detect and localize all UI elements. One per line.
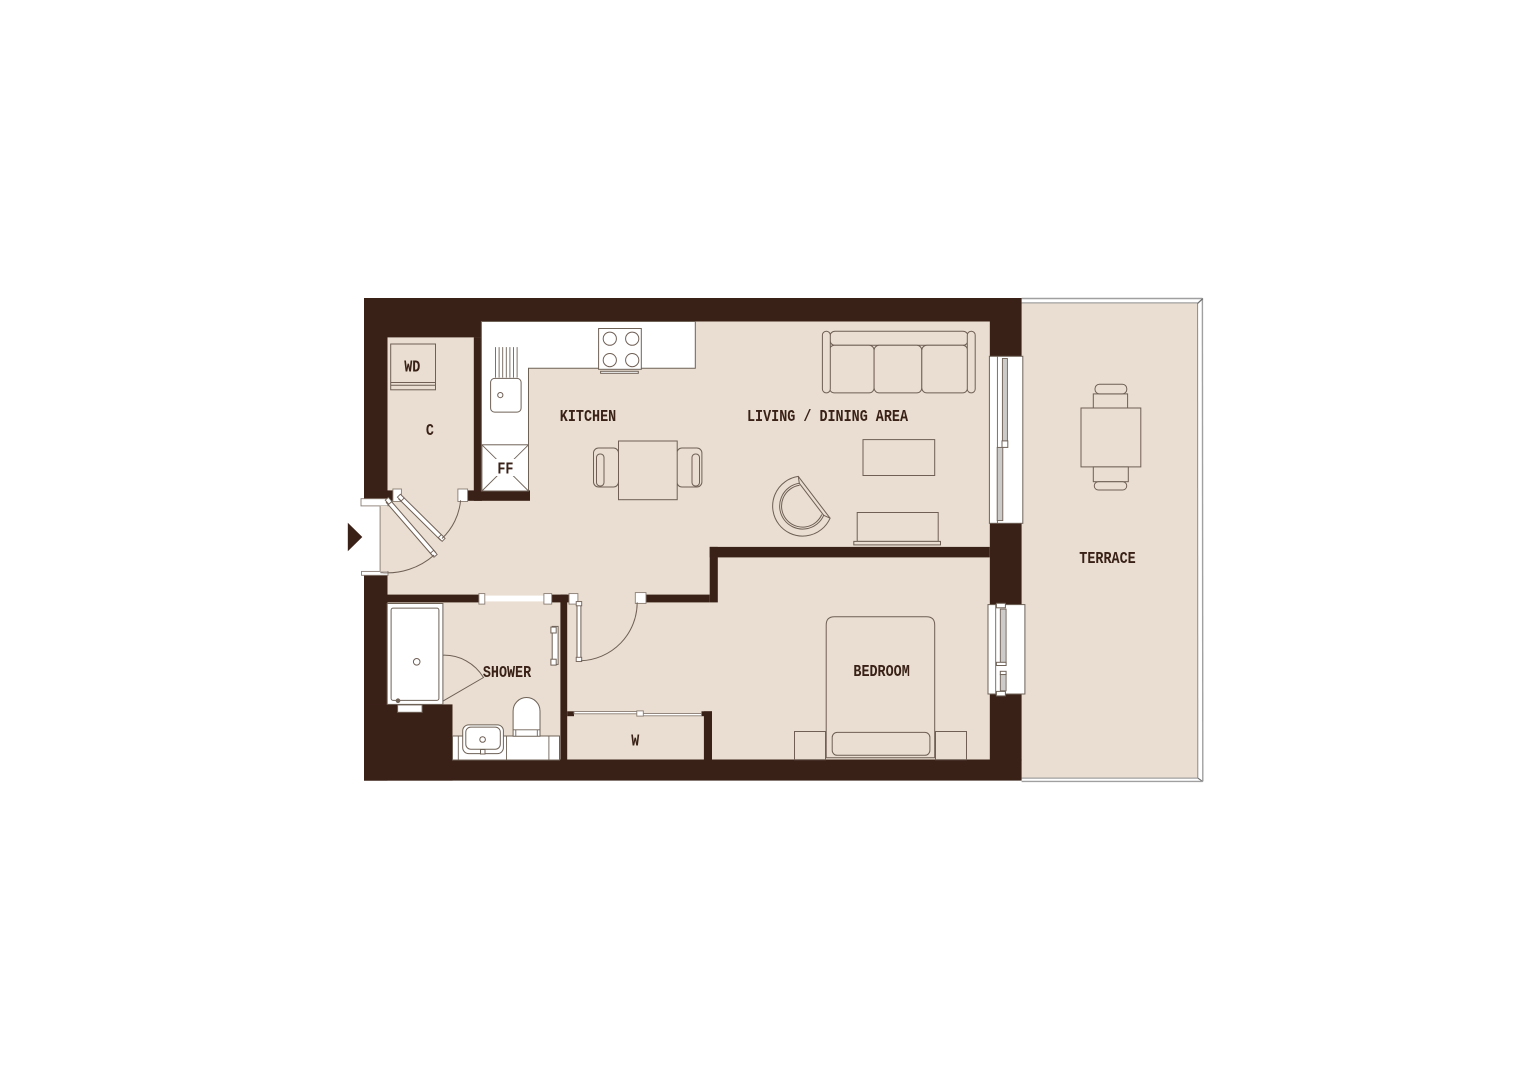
svg-text:TERRACE: TERRACE xyxy=(1079,550,1135,569)
svg-text:FF: FF xyxy=(497,461,513,480)
svg-text:LIVING / DINING AREA: LIVING / DINING AREA xyxy=(747,408,909,427)
svg-text:SHOWER: SHOWER xyxy=(483,664,532,683)
svg-text:WD: WD xyxy=(404,359,420,378)
svg-text:BEDROOM: BEDROOM xyxy=(853,663,909,682)
svg-text:W: W xyxy=(631,732,640,751)
svg-text:C: C xyxy=(426,422,434,441)
svg-text:KITCHEN: KITCHEN xyxy=(560,408,616,427)
